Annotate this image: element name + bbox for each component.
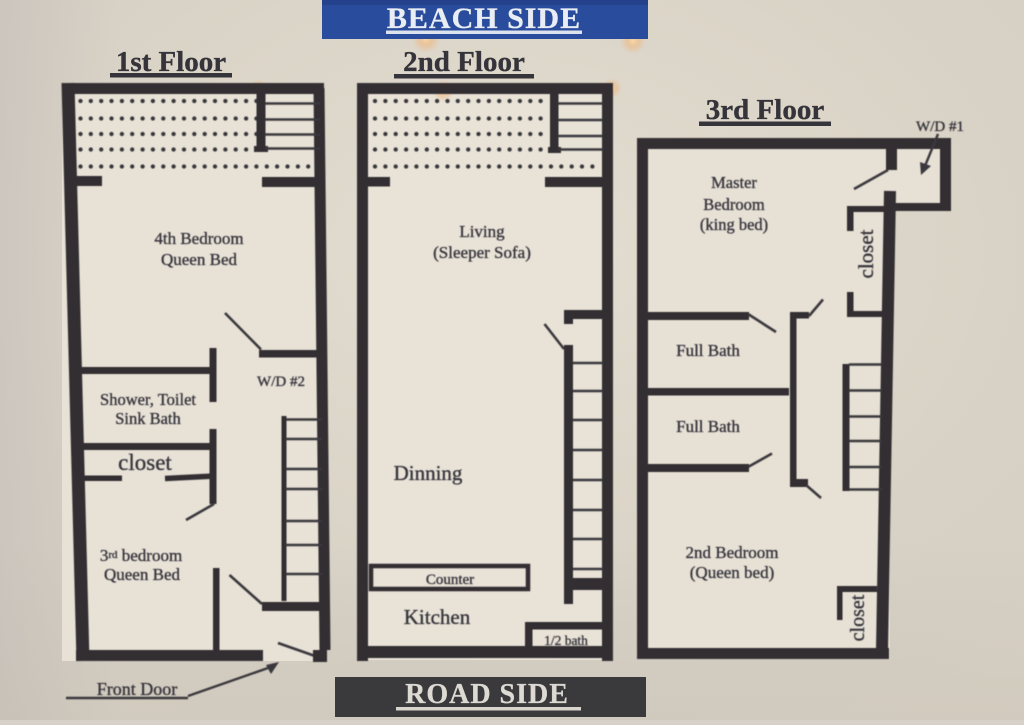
svg-text:closet: closet [118,450,172,475]
svg-text:Dinning: Dinning [394,461,463,485]
svg-text:Full Bath: Full Bath [676,341,740,360]
svg-text:closet: closet [847,594,869,641]
svg-text:BEACH SIDE: BEACH SIDE [387,2,581,35]
svg-text:closet: closet [854,229,878,278]
svg-text:Master: Master [711,173,757,192]
svg-text:(Queen bed): (Queen bed) [690,563,775,582]
svg-text:1/2 bath: 1/2 bath [544,633,588,648]
svg-text:Queen Bed: Queen Bed [104,565,181,584]
svg-text:Kitchen: Kitchen [404,605,471,629]
svg-text:Counter: Counter [426,572,474,588]
svg-text:(king bed): (king bed) [700,215,768,234]
svg-text:W/D #1: W/D #1 [916,119,964,135]
svg-text:(Sleeper Sofa): (Sleeper Sofa) [433,243,531,262]
svg-text:Front Door: Front Door [97,679,178,699]
svg-text:Queen Bed: Queen Bed [161,250,238,269]
svg-text:2nd Floor: 2nd Floor [403,46,525,78]
svg-text:Full Bath: Full Bath [676,417,740,436]
svg-text:Living: Living [459,222,505,241]
svg-text:4th Bedroom: 4th Bedroom [154,229,243,248]
svg-text:Sink Bath: Sink Bath [115,409,181,428]
svg-text:Shower, Toilet: Shower, Toilet [100,390,196,409]
svg-text:ROAD SIDE: ROAD SIDE [405,679,569,710]
svg-text:Bedroom: Bedroom [703,195,765,214]
svg-text:W/D #2: W/D #2 [257,374,305,390]
svg-text:3rd Floor: 3rd Floor [706,94,825,126]
svg-text:2nd Bedroom: 2nd Bedroom [685,543,778,562]
